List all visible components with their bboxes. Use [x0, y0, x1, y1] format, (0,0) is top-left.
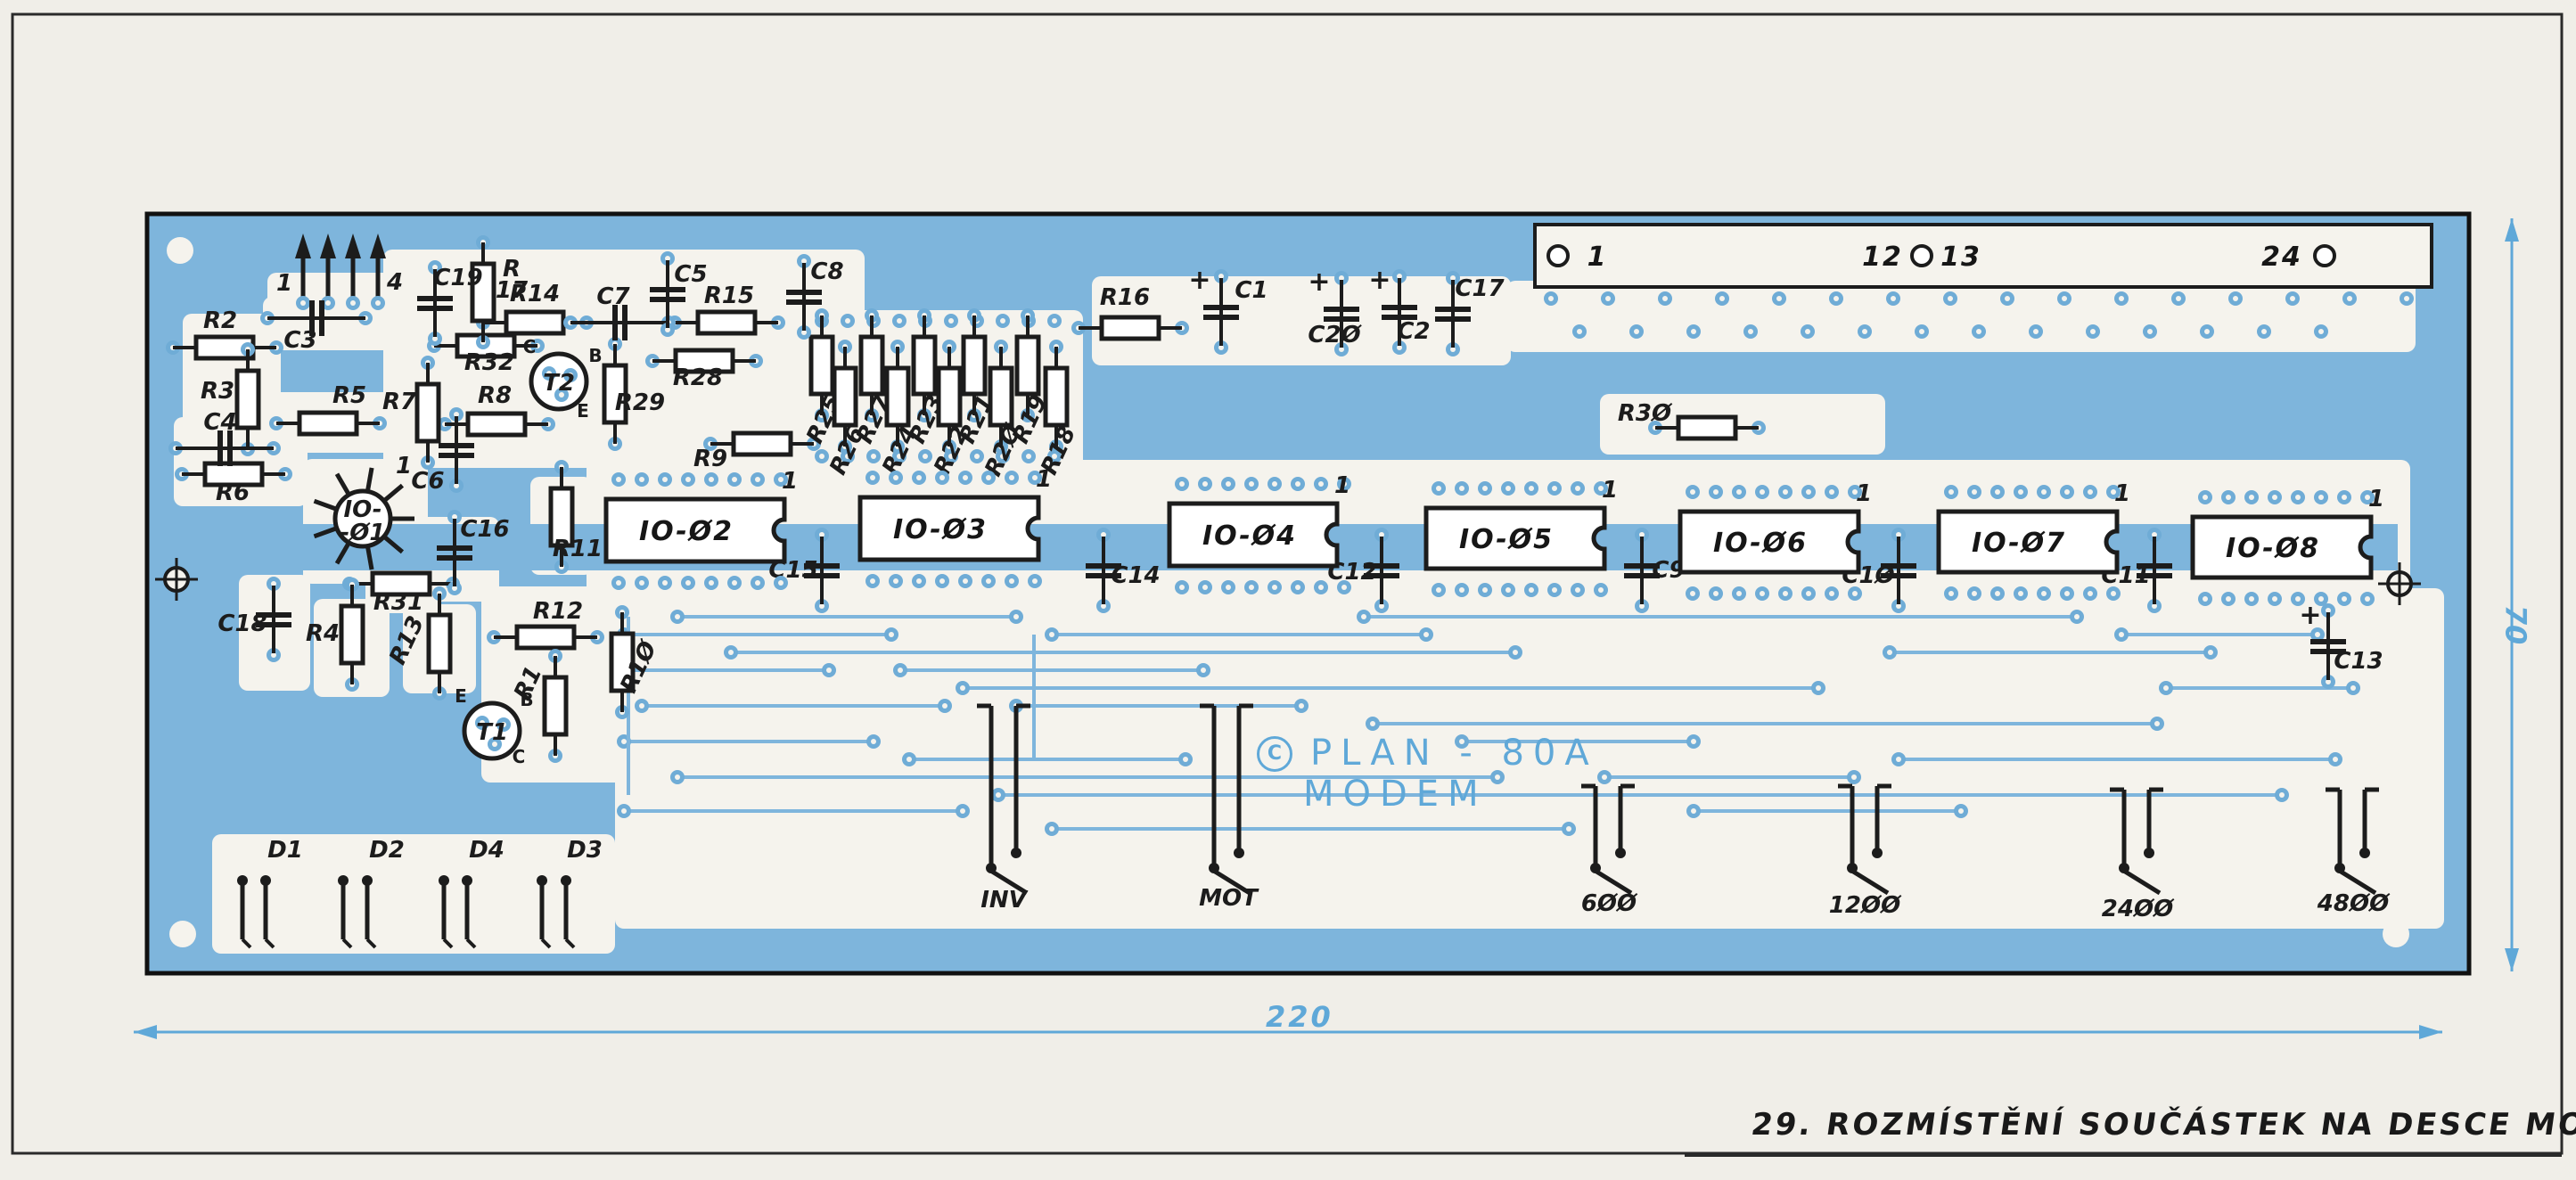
- ic-pin1-label: 1: [782, 468, 798, 495]
- resistor-R1: [545, 677, 566, 734]
- component-label: C14: [1111, 562, 1160, 589]
- component-label: C6: [411, 468, 444, 495]
- resistor-R16: [1102, 317, 1159, 339]
- diode-label: D4: [469, 837, 505, 864]
- component-label: IO-Ø3: [893, 514, 988, 545]
- mounting-hole: [2383, 921, 2409, 947]
- component-label: IO-Ø4: [1202, 520, 1297, 552]
- component-label: IO-Ø8: [2226, 533, 2320, 564]
- resistor-R25: [811, 337, 833, 394]
- resistor-R18: [1046, 368, 1067, 425]
- component-label: C1: [1235, 277, 1267, 304]
- component-label: C16: [460, 516, 509, 543]
- component-label: IO-Ø5: [1459, 524, 1554, 555]
- ic-pin1-label: 1: [2368, 486, 2384, 512]
- transistor-pin-label: E: [577, 400, 589, 422]
- jumper-label: INV: [980, 887, 1028, 914]
- resistor-R21: [964, 337, 985, 394]
- component-label: C5: [674, 261, 707, 288]
- resistor-R3Ø: [1678, 417, 1735, 438]
- ic-pin1-label: 1: [396, 453, 412, 479]
- component-label: IO-Ø7: [1972, 528, 2066, 559]
- transistor-pin-label: B: [588, 345, 602, 366]
- polarity-plus: +: [1188, 265, 1210, 296]
- component-label: IO-Ø6: [1713, 528, 1808, 559]
- arrow-last-label: 4: [386, 269, 403, 296]
- polarity-plus: +: [1308, 266, 1330, 298]
- transistor-pin-label: C: [523, 336, 537, 357]
- component-label: R6: [216, 479, 250, 506]
- component-label: C2Ø: [1308, 322, 1362, 348]
- component-label: R4: [306, 620, 340, 647]
- component-label: R29: [615, 389, 665, 416]
- component-label: R12: [533, 598, 583, 625]
- resistor-R2Ø: [990, 368, 1012, 425]
- component-label: R2: [203, 307, 237, 334]
- jumper-label: 6ØØ: [1581, 890, 1638, 917]
- component-label: IO-Ø2: [639, 516, 734, 547]
- component-label: R3: [201, 378, 234, 405]
- component-label: R28: [673, 365, 723, 391]
- connector-pin-number: 24: [2261, 242, 2302, 273]
- transistor-pin-label: B: [520, 689, 533, 710]
- resistor-R15: [698, 312, 755, 333]
- component-label: R7: [382, 389, 417, 415]
- mounting-hole: [167, 237, 193, 264]
- component-label: T2: [543, 370, 575, 397]
- connector-pin-hole: [1548, 246, 1568, 266]
- component-label: C2: [1397, 318, 1430, 345]
- component-label: R31: [373, 589, 423, 616]
- component-label: C18: [217, 610, 267, 637]
- pcb-placement-drawing: 141121324R2R5R6R8R9R12R31R32R14R15R16R28…: [0, 0, 2576, 1180]
- component-label: R9: [693, 446, 727, 472]
- ic-pin1-label: 1: [1856, 480, 1872, 507]
- dimension-arrow-icon: [2419, 1025, 2442, 1039]
- resistor-R4: [341, 606, 363, 663]
- resistor-R19: [1017, 337, 1038, 394]
- connector-pin-number: 13: [1940, 242, 1981, 273]
- resistor-R14: [506, 312, 563, 333]
- connector-pin-hole: [2315, 246, 2334, 266]
- resistor-R24: [887, 368, 908, 425]
- dimension-arrow-icon: [2505, 948, 2519, 971]
- resistor-R7: [417, 384, 439, 441]
- resistor-R27: [861, 337, 882, 394]
- resistor-R9: [734, 433, 791, 455]
- component-label: -Ø1: [340, 520, 386, 546]
- component-label: C4: [203, 409, 236, 436]
- resistor-R22: [939, 368, 960, 425]
- connector-pin-hole: [1912, 246, 1932, 266]
- ic-pin1-label: 1: [1334, 472, 1350, 499]
- transistor-pin-label: E: [455, 685, 467, 707]
- resistor-R13: [429, 615, 450, 672]
- transistor-pin-label: C: [513, 746, 526, 767]
- polarity-plus: +: [1368, 265, 1391, 296]
- diode-label: D2: [369, 837, 405, 864]
- component-label: R5: [332, 382, 366, 409]
- connector-pin-number: 1: [1587, 242, 1608, 273]
- component-label: R32: [464, 349, 514, 376]
- jumper-label: 48ØØ: [2317, 890, 2391, 917]
- component-label: C17: [1455, 275, 1505, 302]
- component-label: T1: [476, 719, 508, 746]
- resistor-R8: [468, 414, 525, 435]
- diode-label: D1: [267, 837, 303, 864]
- component-label: C8: [810, 258, 843, 285]
- dimension-arrow-icon: [2505, 218, 2519, 242]
- component-label: R8: [478, 382, 512, 409]
- jumper-label: 12ØØ: [1829, 892, 1902, 919]
- component-label: R11: [553, 536, 603, 562]
- component-label: R3Ø: [1618, 400, 1673, 427]
- diode-label: D3: [567, 837, 603, 864]
- mounting-hole: [169, 921, 196, 947]
- jumper-label: MOT: [1199, 885, 1259, 912]
- dimension-arrow-icon: [134, 1025, 157, 1039]
- resistor-R26: [834, 368, 856, 425]
- resistor-R23: [914, 337, 935, 394]
- resistor-R3: [237, 371, 258, 428]
- arrow-first-label: 1: [276, 270, 292, 297]
- resistor-R5: [299, 413, 357, 434]
- component-label: R15: [704, 283, 754, 309]
- connector-pin-number: 12: [1862, 242, 1903, 273]
- component-label: C3: [283, 327, 316, 354]
- component-label: R16: [1100, 284, 1150, 311]
- ic-pin1-label: 1: [2114, 480, 2130, 507]
- ic-pin1-label: 1: [1602, 477, 1618, 504]
- component-label: C13: [2334, 648, 2383, 675]
- schematic-sheet: 141121324R2R5R6R8R9R12R31R32R14R15R16R28…: [0, 0, 2576, 1180]
- jumper-label: 24ØØ: [2102, 896, 2175, 922]
- component-label: C7: [596, 283, 630, 310]
- component-label: C19: [433, 265, 482, 291]
- resistor-R12: [517, 627, 574, 648]
- ic-pin1-label: 1: [1036, 466, 1052, 493]
